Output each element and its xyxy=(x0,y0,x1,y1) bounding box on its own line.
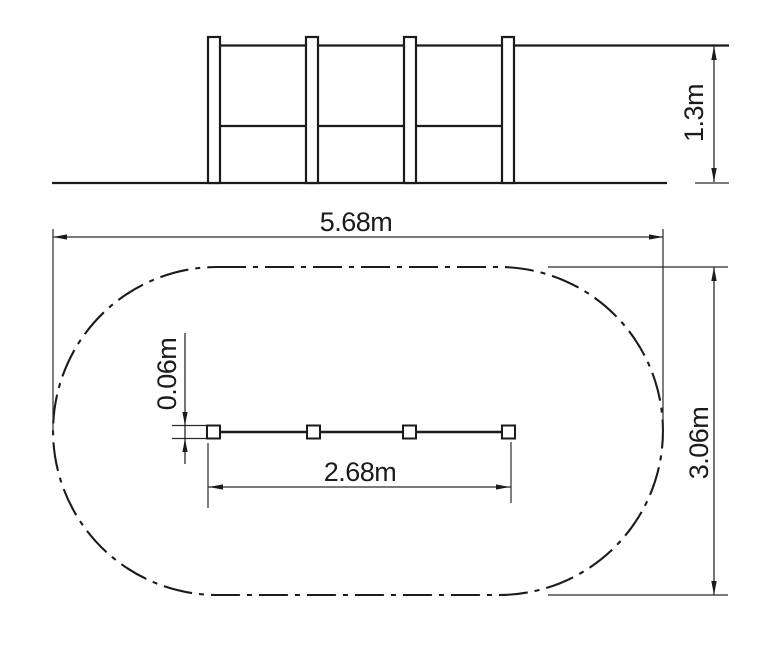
height-dimension-arrow-down xyxy=(711,168,716,182)
height-dimension-arrow-up xyxy=(711,46,716,60)
overall-length-dimension-label: 5.68m xyxy=(320,207,393,237)
post-size-arrow-down xyxy=(182,412,187,426)
fence-length-dimension-label: 2.68m xyxy=(324,457,397,487)
height-dimension-label: 1.3m xyxy=(679,84,709,142)
fence-length-dimension: 2.68m xyxy=(208,442,511,508)
plan-post-marker-4 xyxy=(502,426,515,439)
overall-length-arrow-right xyxy=(649,234,663,239)
post-size-dimension: 0.06m xyxy=(152,333,207,464)
elevation-post-3 xyxy=(404,37,416,183)
plan-view: 5.68m 3.06m 2.68m 0.06m xyxy=(53,207,728,595)
technical-drawing: 1.3m 5.68m 3.06m xyxy=(0,0,760,653)
overall-width-dimension: 3.06m xyxy=(548,267,728,595)
overall-length-dimension: 5.68m xyxy=(53,207,663,434)
elevation-post-1 xyxy=(208,37,220,183)
elevation-post-2 xyxy=(306,37,318,183)
post-size-dimension-label: 0.06m xyxy=(152,338,182,411)
plan-post-marker-2 xyxy=(307,426,320,439)
overall-length-arrow-left xyxy=(53,234,67,239)
fence-length-arrow-right xyxy=(496,484,510,489)
plan-post-marker-3 xyxy=(403,426,416,439)
plan-post-marker-1 xyxy=(207,426,220,439)
overall-width-arrow-up xyxy=(711,267,716,281)
fence-length-arrow-left xyxy=(209,484,223,489)
elevation-view: 1.3m xyxy=(52,37,729,183)
elevation-post-4 xyxy=(502,37,514,183)
height-dimension: 1.3m xyxy=(679,46,729,183)
overall-width-dimension-label: 3.06m xyxy=(684,407,714,480)
post-size-arrow-up xyxy=(182,439,187,453)
overall-width-arrow-down xyxy=(711,581,716,595)
